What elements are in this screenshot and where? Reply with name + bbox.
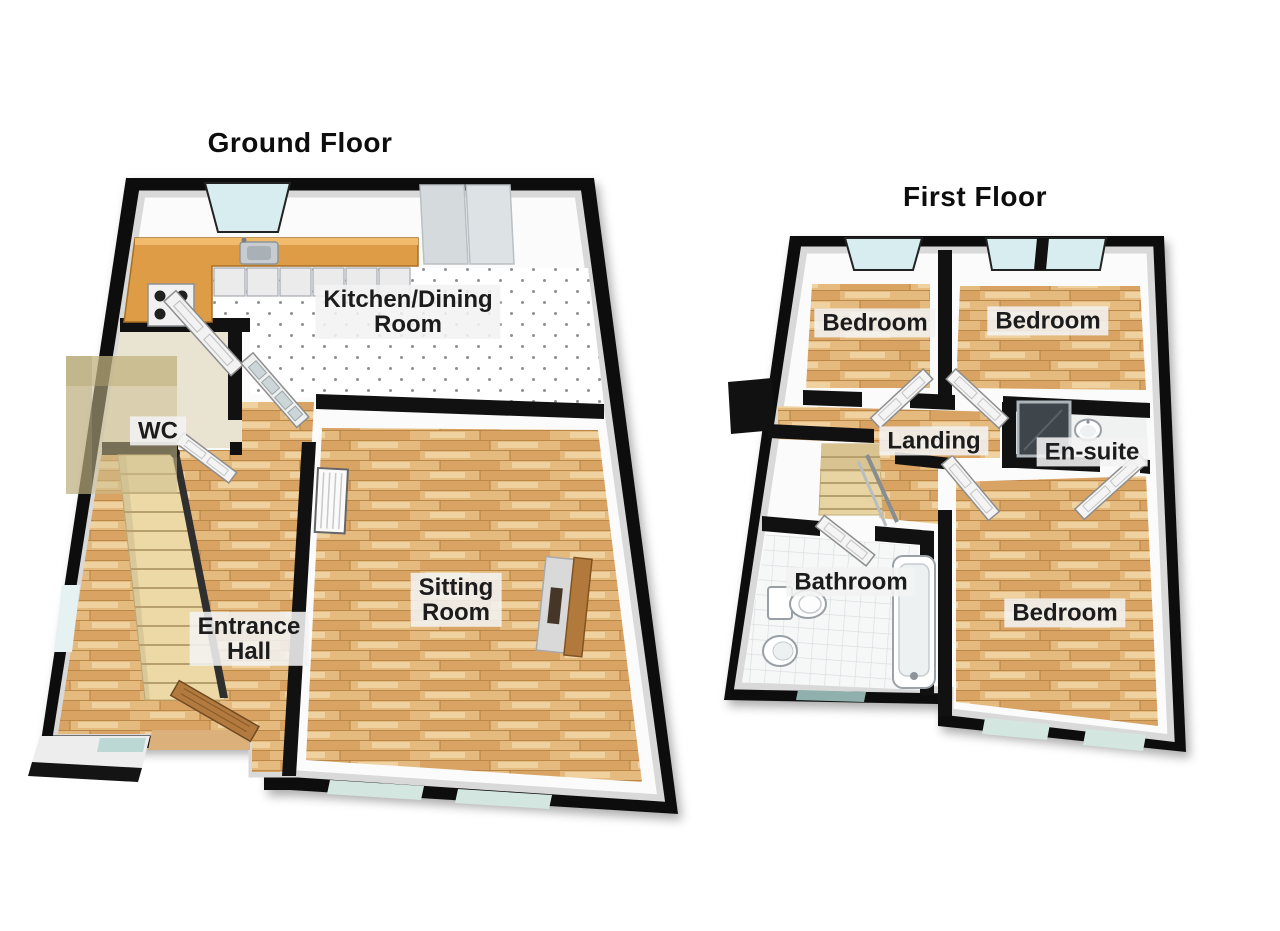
room-label-kitchen: Kitchen/Dining Room [315,285,500,339]
ground-floor-title: Ground Floor [208,127,393,159]
room-label-bathroom-line1: Bathroom [794,569,907,594]
floor-plan-page: Ground Floor Kitchen/Dining Room WC Entr… [0,0,1280,931]
bedroom-top-right-floor [956,286,1146,390]
front-porch-step [28,736,150,782]
room-label-ensuite-line1: En-suite [1045,439,1140,464]
radiator [315,468,348,533]
room-label-wc-line1: WC [138,418,178,443]
bathroom-basin [763,636,797,666]
room-label-landing: Landing [879,426,988,455]
kitchen-sink [240,238,278,265]
fireplace [536,555,592,657]
room-label-bedroom-b-line1: Bedroom [1012,600,1117,625]
room-label-ensuite: En-suite [1037,437,1148,466]
room-label-bedroom-top-right: Bedroom [987,306,1108,335]
room-label-bedroom-tl-line1: Bedroom [822,310,927,335]
first-floor-title: First Floor [903,181,1047,213]
room-label-wc: WC [130,416,186,445]
first-floor-plan [724,236,1186,752]
room-label-sitting-line2: Room [419,600,494,625]
room-label-entrance-line2: Hall [198,639,301,664]
room-label-bathroom: Bathroom [786,567,915,596]
room-label-bedroom-bottom: Bedroom [1004,598,1125,627]
kitchen-window [205,183,290,232]
room-label-entrance-hall: Entrance Hall [190,612,309,666]
room-label-landing-line1: Landing [887,428,980,453]
room-label-bedroom-top-left: Bedroom [814,308,935,337]
ground-floor-plan [28,178,678,814]
room-label-kitchen-line2: Room [323,312,492,337]
room-label-kitchen-line1: Kitchen/Dining [323,287,492,312]
room-label-sitting-room: Sitting Room [411,573,502,627]
first-wall-step [728,378,775,434]
room-label-entrance-line1: Entrance [198,614,301,639]
room-label-sitting-line1: Sitting [419,575,494,600]
room-label-bedroom-tr-line1: Bedroom [995,308,1100,333]
